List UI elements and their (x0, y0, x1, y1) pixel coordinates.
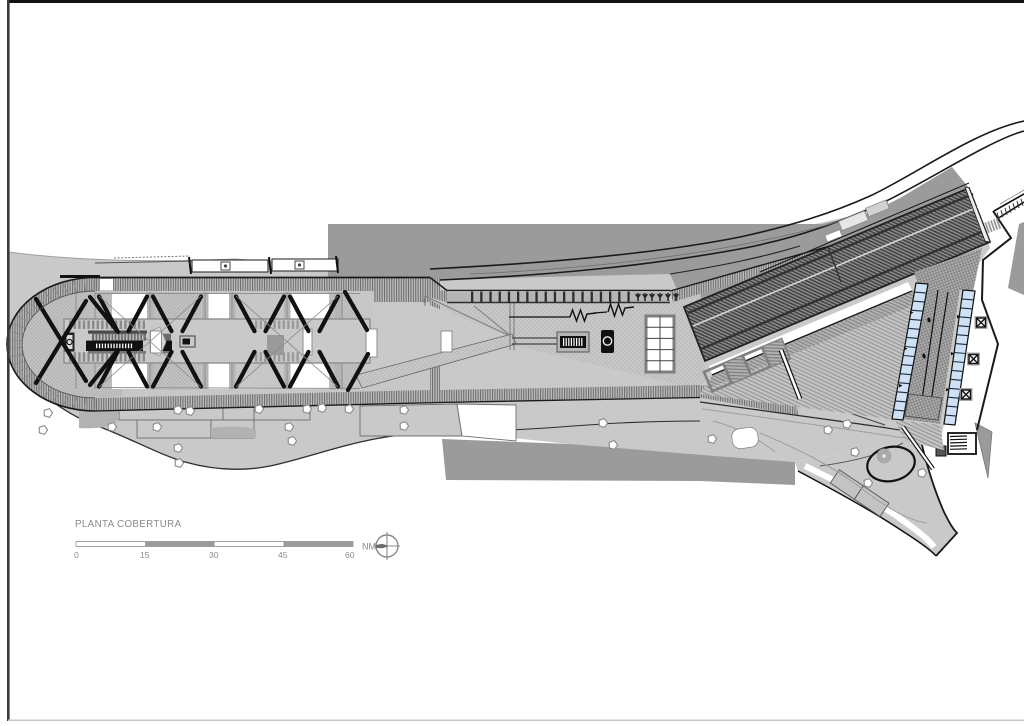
svg-text:30: 30 (209, 550, 219, 560)
svg-text:60: 60 (345, 550, 355, 560)
svg-text:0: 0 (74, 550, 79, 560)
svg-text:15: 15 (140, 550, 150, 560)
svg-text:PLANTA COBERTURA: PLANTA COBERTURA (75, 519, 182, 530)
svg-text:NM: NM (362, 542, 376, 552)
svg-text:45: 45 (278, 550, 288, 560)
